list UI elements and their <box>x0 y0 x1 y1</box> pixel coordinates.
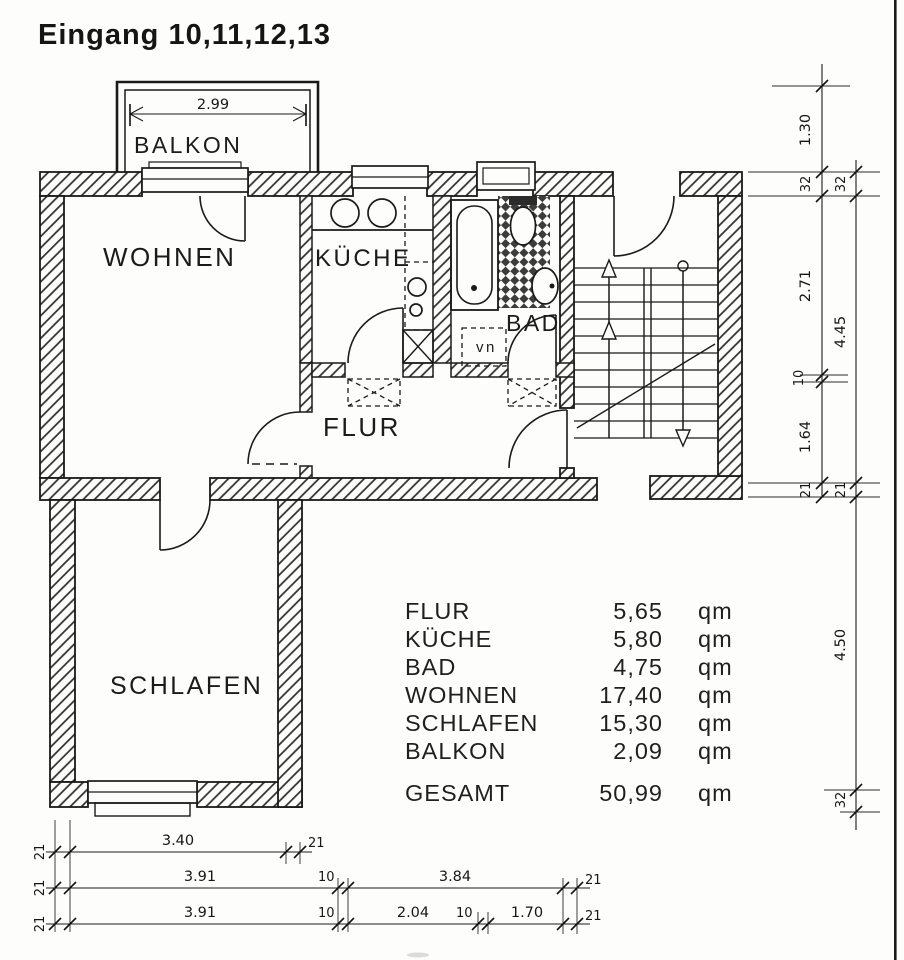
area-row-label: WOHNEN <box>405 682 518 708</box>
area-row-unit: qm <box>698 626 733 652</box>
kitchen-sink <box>408 278 426 296</box>
dim-right-outer-0: 32 <box>834 176 849 193</box>
area-row-unit: qm <box>698 654 733 680</box>
dim-right-inner-5: 21 <box>799 482 814 499</box>
dim-bottom3-2: 10 <box>318 906 335 921</box>
area-row-label: BAD <box>405 654 456 680</box>
dim-right-outer-1: 4.45 <box>833 316 849 348</box>
dim-right-outer-3: 4.50 <box>833 629 849 661</box>
page-title: Eingang 10,11,12,13 <box>38 19 331 51</box>
room-label-niche: vn <box>476 339 497 356</box>
dim-bottom1-1: 3.40 <box>162 833 194 849</box>
dim-bottom2-1: 3.91 <box>184 869 216 885</box>
room-label-wohnen: WOHNEN <box>103 242 236 272</box>
dim-bottom3-3: 2.04 <box>397 905 429 921</box>
dim-right-inner-0: 1.30 <box>798 114 814 146</box>
area-total-label: GESAMT <box>405 780 510 806</box>
dim-bottom3-4: 10 <box>456 906 473 921</box>
area-row-value: 17,40 <box>599 682 663 708</box>
dim-right-inner-3: 10 <box>792 370 807 387</box>
scan-border <box>894 0 897 960</box>
dim-right-outer-2: 21 <box>834 482 849 499</box>
area-row-label: KÜCHE <box>405 626 492 652</box>
dim-right-inner-4: 1.64 <box>798 421 814 453</box>
room-label-bad: BAD <box>506 310 561 336</box>
dim-bottom3-0: 21 <box>33 916 48 933</box>
area-row-unit: qm <box>698 710 733 736</box>
dim-balcony-width: 2.99 <box>197 97 229 113</box>
area-row-value: 5,65 <box>613 598 663 624</box>
dim-right-outer-4: 32 <box>834 792 849 809</box>
balcony-window <box>142 168 248 192</box>
dim-bottom2-0: 21 <box>33 880 48 897</box>
toilet-cistern <box>509 196 537 205</box>
area-row-unit: qm <box>698 682 733 708</box>
dim-bottom2-4: 21 <box>585 873 602 888</box>
dim-bottom1-0: 21 <box>33 844 48 861</box>
room-label-balkon: BALKON <box>134 132 242 158</box>
room-label-kueche: KÜCHE <box>315 245 412 272</box>
dim-bottom2-3: 3.84 <box>439 869 471 885</box>
bath-window <box>477 162 535 190</box>
stove-burner <box>368 199 396 227</box>
area-row-label: BALKON <box>405 738 506 764</box>
dim-bottom3-5: 1.70 <box>511 905 543 921</box>
dim-bottom2-2: 10 <box>318 870 335 885</box>
dim-bottom3-6: 21 <box>585 909 602 924</box>
toilet <box>511 207 536 245</box>
scan-smudge <box>407 953 429 958</box>
area-row-label: SCHLAFEN <box>405 710 538 736</box>
area-row-unit: qm <box>698 738 733 764</box>
floor-plan-scan: Eingang 10,11,12,13 2.99 BALKON <box>0 0 904 960</box>
area-row-value: 5,80 <box>613 626 663 652</box>
area-total-value: 50,99 <box>599 780 663 806</box>
dim-right-inner-2: 2.71 <box>798 270 814 302</box>
area-row-value: 15,30 <box>599 710 663 736</box>
area-row-unit: qm <box>698 598 733 624</box>
bathtub-drain <box>471 285 477 291</box>
area-row-value: 4,75 <box>613 654 663 680</box>
room-label-flur: FLUR <box>323 412 401 442</box>
area-row-label: FLUR <box>405 598 470 624</box>
dim-bottom1-2: 21 <box>308 836 325 851</box>
room-label-schlafen: SCHLAFEN <box>110 672 263 700</box>
dim-right-inner-1: 32 <box>799 176 814 193</box>
area-row-value: 2,09 <box>613 738 663 764</box>
area-total-unit: qm <box>698 780 733 806</box>
dim-bottom3-1: 3.91 <box>184 905 216 921</box>
stove-burner <box>331 199 359 227</box>
